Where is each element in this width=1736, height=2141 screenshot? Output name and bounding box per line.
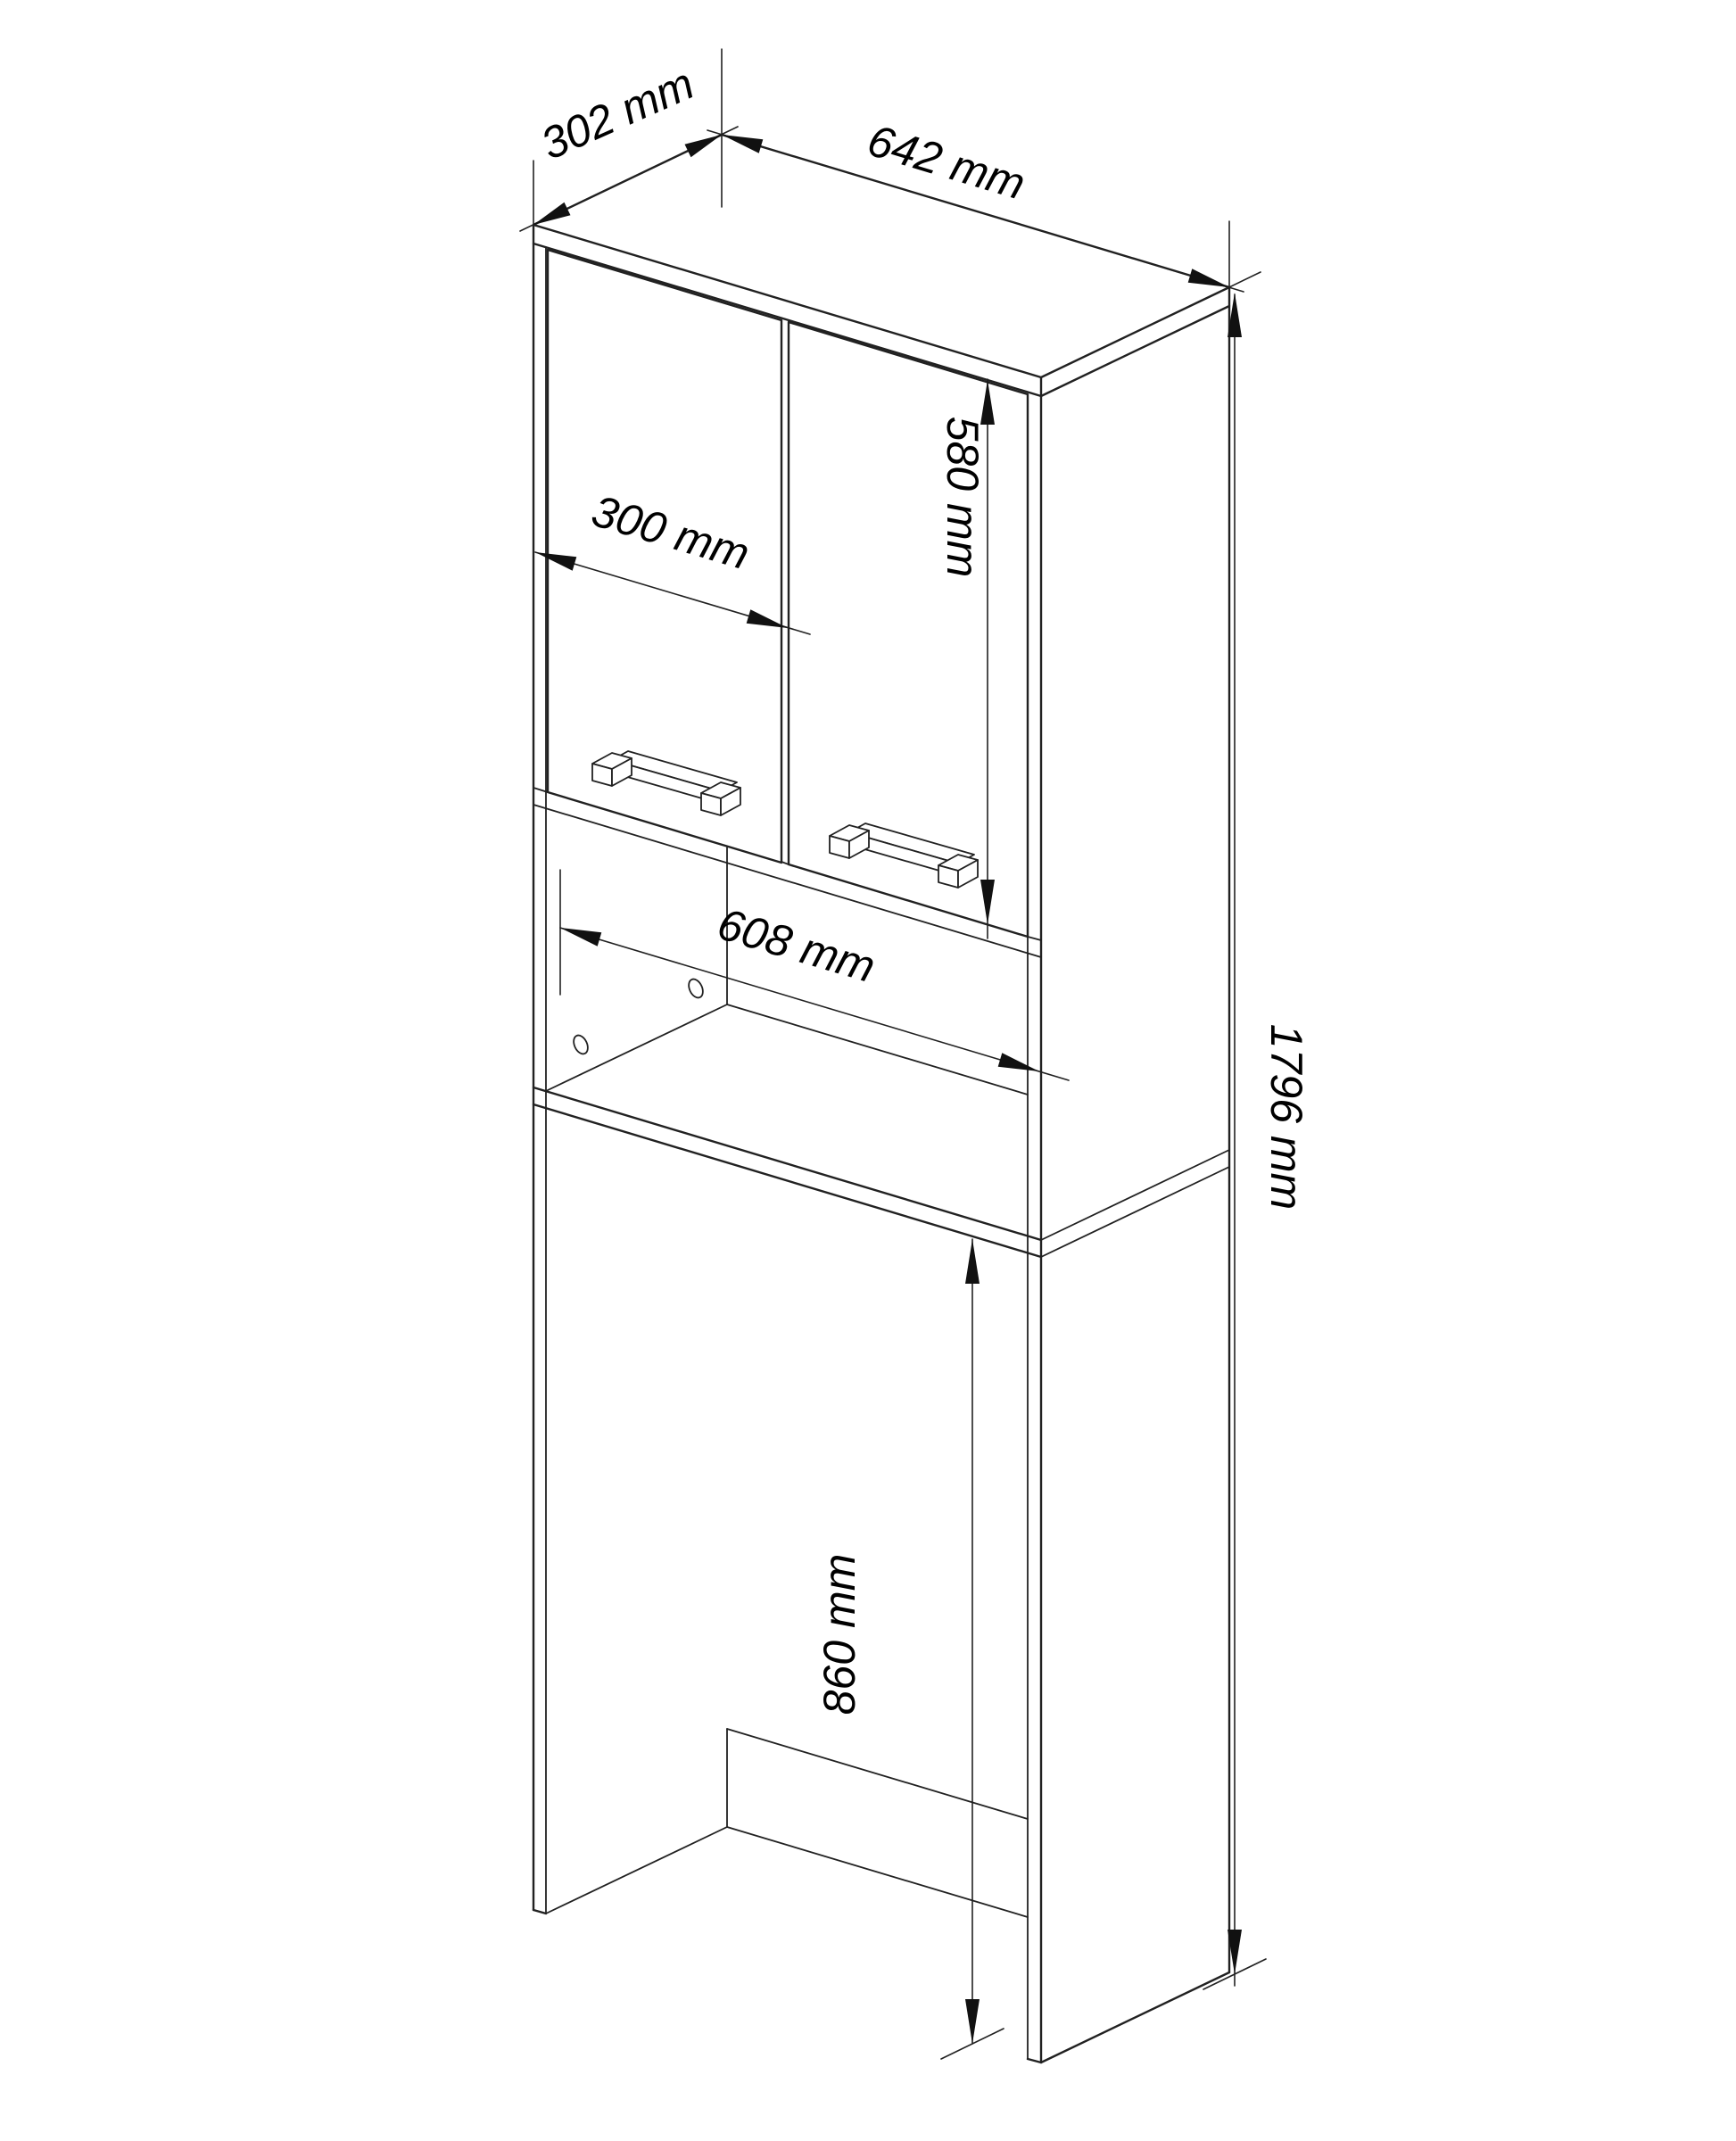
dim-1796-label: 1796 mm — [1261, 1024, 1311, 1210]
dimension-total-height-1796: 1796 mm — [1203, 293, 1311, 1989]
cabinet-outline — [533, 135, 1229, 2062]
shelf-pin-hole — [686, 977, 706, 1000]
dimension-depth-302: 302 mm — [520, 49, 738, 232]
dim-860-label: 860 mm — [814, 1554, 864, 1715]
cabinet-technical-drawing: 302 mm 642 mm 300 mm 580 mm 608 mm — [0, 0, 1736, 2141]
dimension-clearance-860: 860 mm — [814, 1239, 1004, 2059]
washer-space-interior — [546, 1729, 1028, 1917]
dimension-width-642: 642 mm — [707, 115, 1261, 302]
shelf-pin-hole — [571, 1033, 591, 1056]
dim-580-label: 580 mm — [938, 417, 988, 578]
door-handle-left — [592, 751, 740, 815]
dim-300-label: 300 mm — [586, 485, 755, 579]
dimension-door-width-300: 300 mm — [535, 485, 810, 634]
dimension-niche-608: 608 mm — [560, 870, 1069, 1080]
dim-642-label: 642 mm — [862, 115, 1030, 210]
dim-302-label: 302 mm — [533, 58, 701, 169]
dim-608-label: 608 mm — [712, 898, 880, 992]
door-handle-right — [830, 823, 978, 888]
drawing-canvas: 302 mm 642 mm 300 mm 580 mm 608 mm — [0, 0, 1736, 2141]
